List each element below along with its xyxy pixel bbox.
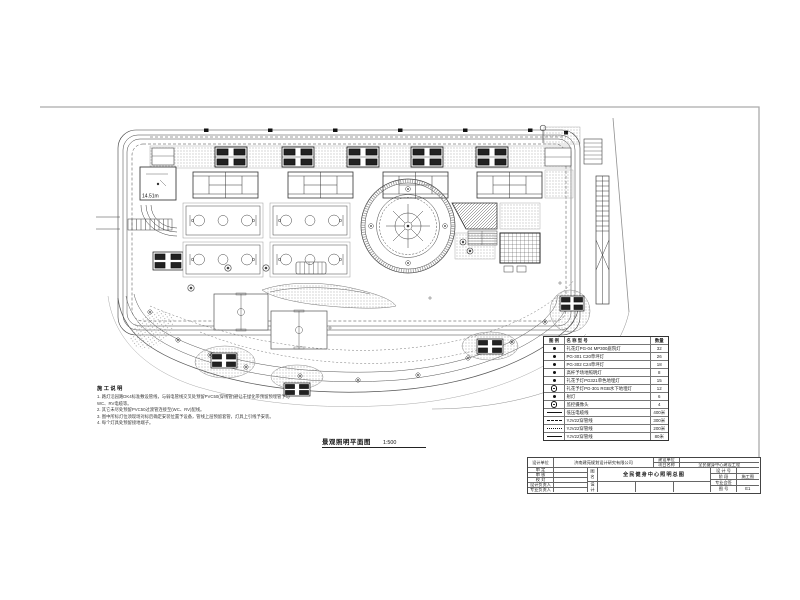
dot-symbol-icon <box>553 395 556 398</box>
target-symbol-icon <box>551 385 558 392</box>
legend-row: 监控摄像头4 <box>544 400 668 408</box>
note-line: 4. 每个灯具处预留接地端子。 <box>97 420 322 427</box>
cad-screenshot: { "page": { "background": "#ffffff", "li… <box>0 0 800 600</box>
football-pitch <box>271 310 327 349</box>
road-light-markers <box>204 129 568 135</box>
pavilion <box>560 296 584 311</box>
dotted-line-symbol-icon <box>547 428 562 429</box>
dot-symbol-icon <box>553 363 556 366</box>
left-building: 14.51m <box>140 167 176 200</box>
solid-line-symbol-icon <box>547 412 562 413</box>
tennis-court <box>288 172 353 198</box>
legend-table: 图 例 名 称 型 号 数量 礼花灯PG-04 MP300庭院灯32 PG-30… <box>543 336 669 441</box>
legend-row: 低压电缆线400米 <box>544 408 668 416</box>
note-line: 2. 其它未尽处预留PVC50过渡管连接至(WC、RV)配线。 <box>97 407 322 414</box>
football-pitch <box>214 293 268 331</box>
drawing-title-text: 景观照明平面图 <box>322 437 371 446</box>
note-line: WC、RV电缆等。 <box>97 401 322 408</box>
tennis-court <box>477 172 542 198</box>
signature-cell <box>674 482 711 492</box>
notes-title: 施工说明 <box>97 386 322 393</box>
dot-symbol-icon <box>553 371 556 374</box>
design-col-label: 设计 <box>588 482 598 492</box>
pavilion <box>347 147 379 167</box>
west-terrace <box>96 205 177 236</box>
pavilion <box>211 353 237 368</box>
legend-row: 高杆予场地照明灯8 <box>544 368 668 376</box>
dashed-line-symbol-icon <box>547 420 562 421</box>
sheet-no-label: 图 号 <box>711 486 737 492</box>
note-line: 1. 路灯沿园路DK4标准敷设管线，与弱电管线交叉处预留PVC50(穿线管)避让… <box>97 394 322 401</box>
signature-cell <box>598 482 636 492</box>
dot-symbol-icon <box>553 347 556 350</box>
legend-row: YJV22穿管线200米 <box>544 424 668 432</box>
drawing-scale: 1:500 <box>383 440 397 446</box>
drawing-name-value: 全民健身中心照明总图 <box>598 468 711 482</box>
pavilion <box>477 339 503 354</box>
notes-block: 施工说明 1. 路灯沿园路DK4标准敷设管线，与弱电管线交叉处预留PVC50(穿… <box>97 386 322 427</box>
building-height-label: 14.51m <box>142 194 159 200</box>
legend-row: YJV22穿管线300米 <box>544 416 668 424</box>
legend-header-name: 名 称 型 号 <box>565 337 651 344</box>
legend-row: PG-302 C24草坪灯18 <box>544 360 668 368</box>
legend-header-symbol: 图 例 <box>544 337 565 344</box>
legend-header-row: 图 例 名 称 型 号 数量 <box>544 337 668 344</box>
drawing-name-col-label: 图名 <box>588 468 598 482</box>
tennis-court <box>383 172 448 198</box>
dot-symbol-icon <box>553 355 556 358</box>
camera-symbol-icon <box>551 401 558 408</box>
tennis-court <box>193 172 258 198</box>
legend-header-qty: 数量 <box>651 338 669 344</box>
basketball-court <box>270 242 350 277</box>
basketball-courts <box>183 203 350 277</box>
discipline-lead-label: 专业负责人 <box>528 488 554 492</box>
tennis-courts <box>193 170 573 198</box>
basketball-court <box>270 203 350 238</box>
service-building <box>500 233 540 272</box>
legend-row: YJV22穿管线80米 <box>544 432 668 440</box>
design-unit-value: 济南建苑规划设计研究有限公司 <box>554 458 654 468</box>
pavilion <box>282 147 314 167</box>
legend-row: 礼花予灯PG-301 RGB水下地埋灯12 <box>544 384 668 392</box>
sheet-no-value: E1 <box>737 486 759 492</box>
design-unit-label: 设计单位 <box>528 458 554 468</box>
pavilion <box>411 147 443 167</box>
thick-line-symbol-icon <box>547 436 562 437</box>
west-pavilion <box>153 252 183 270</box>
drawing-title: 景观照明平面图 1:500 <box>322 437 426 448</box>
title-block: 设计单位 济南建苑规划设计研究有限公司 建设单位 项目名称 全民健身中心建设工程… <box>527 457 761 494</box>
signature-cell <box>554 488 588 492</box>
legend-row: 礼花灯PG-04 MP300庭院灯32 <box>544 344 668 352</box>
note-line: 3. 图中所标灯位须现场对标后确定安装位置予设备，管线上层预留套管，灯具上引线予… <box>97 414 322 421</box>
legend-row: 射灯6 <box>544 392 668 400</box>
basketball-court <box>183 203 263 238</box>
pavilion <box>215 147 247 167</box>
dot-symbol-icon <box>553 379 556 382</box>
signature-cell <box>636 482 674 492</box>
pavilion <box>476 147 508 167</box>
site-plan-drawing: 14.51m <box>0 0 800 600</box>
legend-row: 礼花予灯PG321单色地埋灯15 <box>544 376 668 384</box>
legend-row: PG-301 C20草坪灯26 <box>544 352 668 360</box>
basketball-court <box>183 242 263 277</box>
